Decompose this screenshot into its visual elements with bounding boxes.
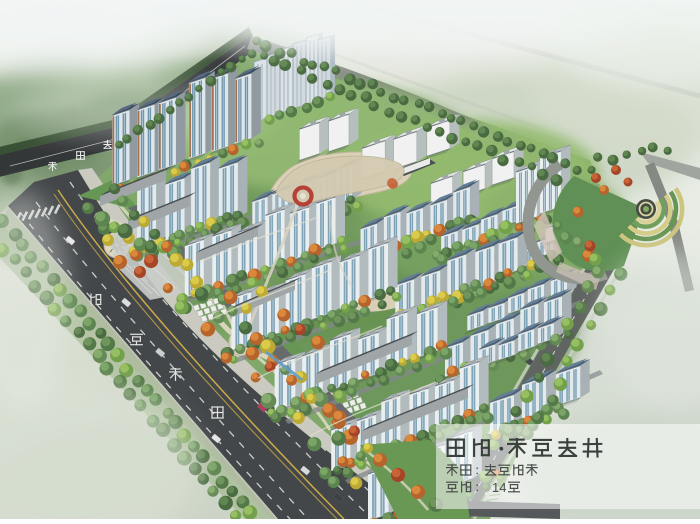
svg-text:14: 14 (492, 480, 506, 495)
